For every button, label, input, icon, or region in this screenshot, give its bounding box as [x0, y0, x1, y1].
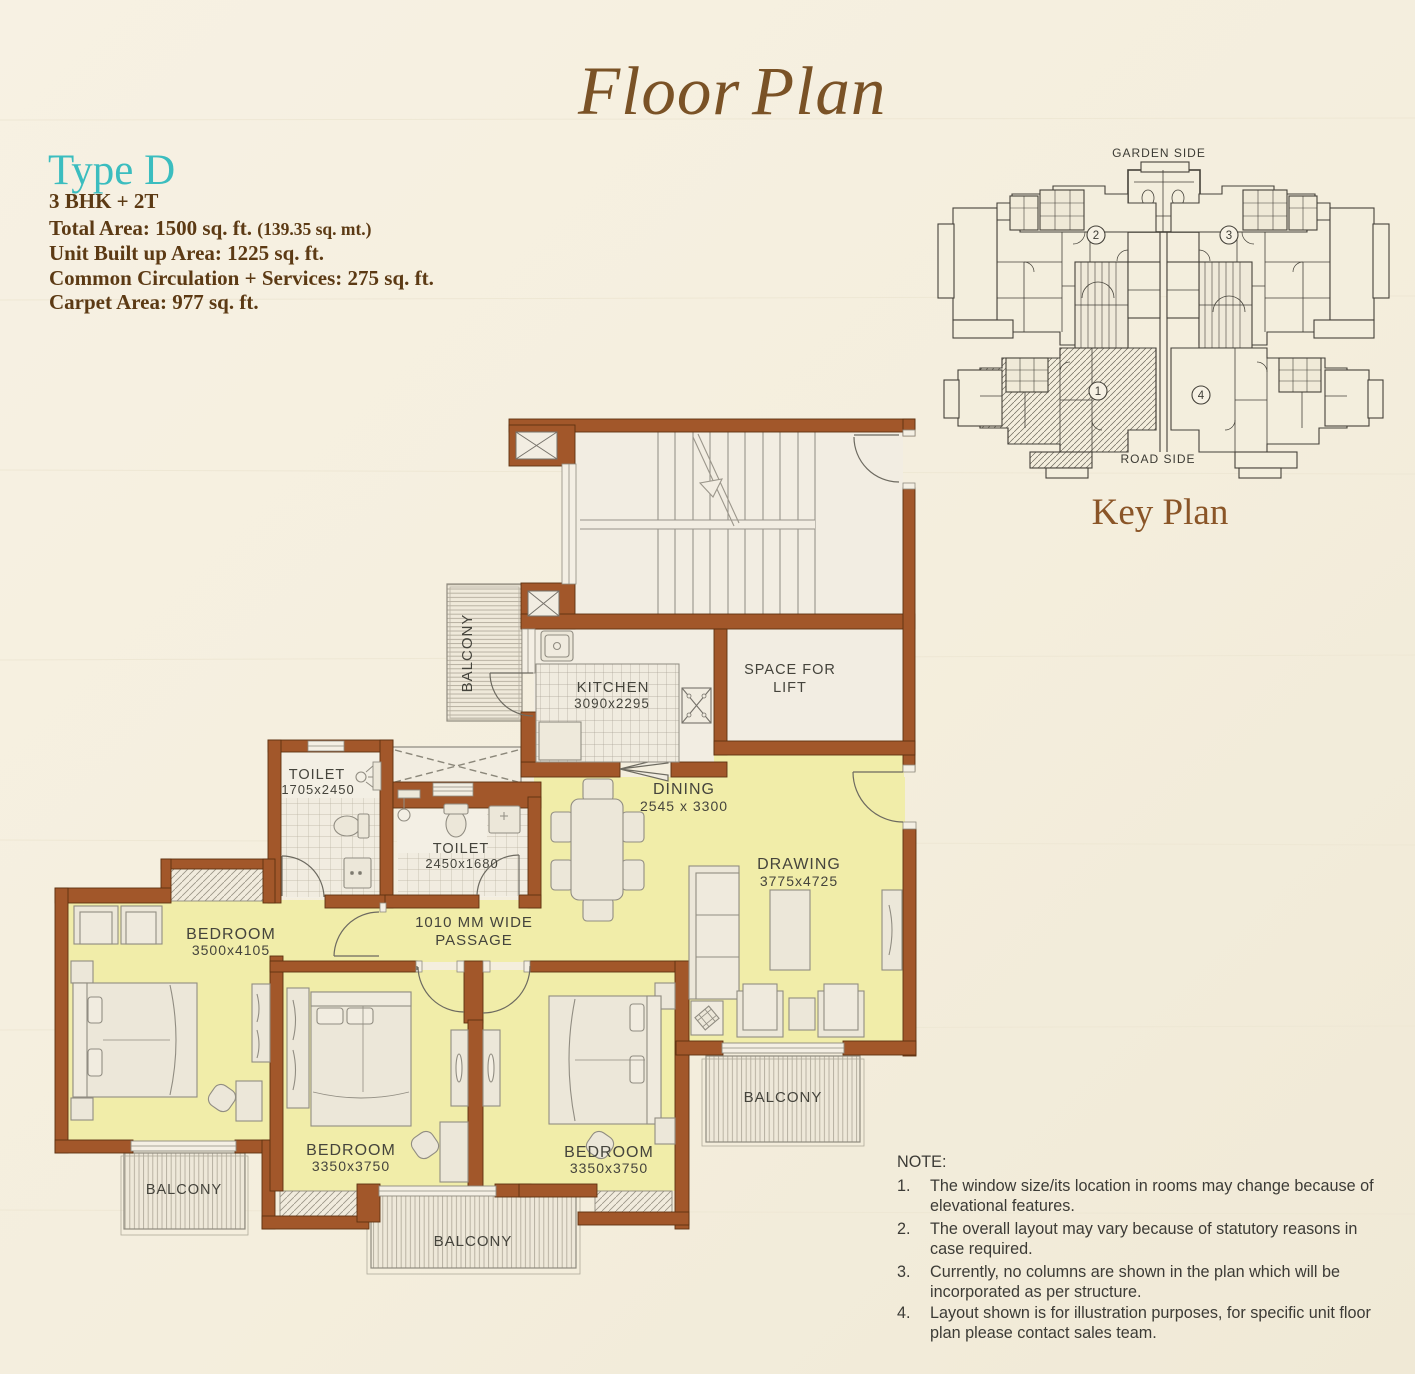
svg-text:The window size/its location i: The window size/its location in rooms ma…: [930, 1177, 1374, 1195]
svg-text:Unit Built up Area: 1225 sq. f: Unit Built up Area: 1225 sq. ft.: [49, 241, 324, 265]
svg-text:2: 2: [1093, 230, 1099, 242]
svg-text:2.: 2.: [897, 1220, 911, 1238]
svg-text:3 BHK + 2T: 3 BHK + 2T: [49, 189, 158, 213]
svg-text:BALCONY: BALCONY: [434, 1233, 513, 1250]
svg-text:Key Plan: Key Plan: [1092, 492, 1229, 533]
svg-text:2545 x 3300: 2545 x 3300: [640, 798, 728, 814]
svg-text:DINING: DINING: [653, 781, 715, 798]
svg-text:BEDROOM: BEDROOM: [306, 1142, 396, 1159]
svg-text:Type D: Type D: [48, 147, 175, 194]
svg-text:Common Circulation + Services:: Common Circulation + Services: 275 sq. f…: [49, 266, 434, 290]
svg-text:SPACE FOR: SPACE FOR: [744, 662, 836, 678]
svg-text:4: 4: [1198, 390, 1205, 402]
svg-text:1.: 1.: [897, 1177, 911, 1195]
svg-text:4.: 4.: [897, 1304, 911, 1322]
svg-text:incorporated as per structure.: incorporated as per structure.: [930, 1283, 1141, 1301]
svg-text:plan please contact sales team: plan please contact sales team.: [930, 1324, 1157, 1342]
svg-text:1705x2450: 1705x2450: [281, 782, 354, 797]
svg-text:elevational features.: elevational features.: [930, 1197, 1075, 1215]
svg-text:Carpet Area: 977 sq. ft.: Carpet Area: 977 sq. ft.: [49, 290, 259, 314]
svg-text:3350x3750: 3350x3750: [312, 1158, 390, 1174]
svg-text:BALCONY: BALCONY: [146, 1182, 222, 1198]
svg-text:TOILET: TOILET: [289, 767, 346, 783]
svg-text:BEDROOM: BEDROOM: [186, 926, 276, 943]
svg-text:Currently, no columns are show: Currently, no columns are shown in the p…: [930, 1263, 1340, 1281]
svg-text:PASSAGE: PASSAGE: [435, 932, 513, 949]
svg-text:3775x4725: 3775x4725: [760, 873, 838, 889]
svg-text:GARDEN SIDE: GARDEN SIDE: [1112, 146, 1206, 160]
svg-text:1010 MM WIDE: 1010 MM WIDE: [415, 914, 533, 931]
svg-text:2450x1680: 2450x1680: [425, 856, 498, 871]
svg-text:Layout shown is for illustrati: Layout shown is for illustration purpose…: [930, 1304, 1371, 1322]
svg-text:Plan: Plan: [751, 53, 886, 129]
svg-text:DRAWING: DRAWING: [757, 856, 841, 873]
svg-text:KITCHEN: KITCHEN: [577, 679, 650, 696]
svg-text:NOTE:: NOTE:: [897, 1153, 946, 1171]
svg-text:3.: 3.: [897, 1263, 911, 1281]
svg-text:3350x3750: 3350x3750: [570, 1160, 648, 1176]
svg-text:Total Area: 1500 sq. ft. (139.: Total Area: 1500 sq. ft. (139.35 sq. mt.…: [49, 216, 372, 240]
svg-text:LIFT: LIFT: [773, 680, 807, 696]
svg-text:TOILET: TOILET: [433, 841, 490, 857]
svg-text:1: 1: [1095, 386, 1101, 398]
svg-text:3090x2295: 3090x2295: [574, 696, 650, 711]
svg-text:BALCONY: BALCONY: [459, 614, 476, 693]
svg-text:BEDROOM: BEDROOM: [564, 1144, 654, 1161]
svg-text:The overall layout may vary be: The overall layout may vary because of s…: [930, 1220, 1357, 1238]
svg-text:3500x4105: 3500x4105: [192, 942, 270, 958]
svg-text:3: 3: [1226, 230, 1232, 242]
svg-text:case required.: case required.: [930, 1240, 1033, 1258]
svg-text:Floor: Floor: [577, 53, 740, 129]
svg-text:ROAD SIDE: ROAD SIDE: [1120, 452, 1195, 466]
svg-text:BALCONY: BALCONY: [744, 1089, 823, 1106]
